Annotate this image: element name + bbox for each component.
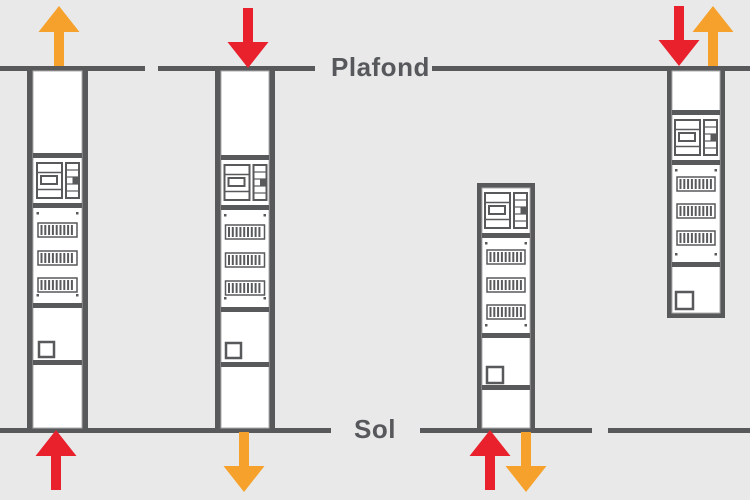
mounting-screw (76, 294, 79, 297)
section-divider (672, 160, 720, 165)
mounting-screw (715, 169, 718, 172)
mounting-screw (76, 212, 79, 215)
module-switch (260, 180, 266, 187)
panel-body (221, 71, 269, 428)
arrow-shape (693, 6, 734, 66)
floor-label: Sol (354, 414, 396, 445)
section-divider (672, 262, 720, 267)
mounting-screw (485, 242, 488, 245)
cabinet-graphic (27, 66, 88, 433)
mounting-screw (264, 297, 267, 300)
mounting-screw (224, 214, 227, 217)
arrow-shape (506, 432, 547, 492)
cabinet-rail (215, 66, 221, 433)
mounting-screw (37, 212, 40, 215)
module-switch (521, 208, 527, 215)
arrow-shape (36, 430, 77, 490)
distribution-board-3 (477, 183, 535, 438)
cabinet-rail (269, 66, 275, 433)
knockout-square (487, 367, 503, 383)
arrow-shape (228, 8, 269, 68)
mounting-screw (525, 324, 528, 327)
panel-2-floor-arrow-down-icon (222, 432, 266, 492)
section-divider (482, 333, 530, 338)
distribution-board-1 (27, 66, 88, 438)
mounting-screw (264, 214, 267, 217)
section-divider (482, 385, 530, 390)
mounting-screw (485, 324, 488, 327)
section-divider (221, 307, 269, 312)
meter-display (679, 133, 695, 141)
section-divider (672, 110, 720, 115)
module-switch (73, 178, 79, 185)
mounting-screw (675, 169, 678, 172)
panel-1-ceiling-arrow-up-icon (37, 6, 81, 66)
knockout-square (676, 292, 693, 309)
meter-display (229, 178, 245, 186)
section-divider (33, 303, 82, 308)
panel-body (672, 71, 720, 313)
floor-line-segment (608, 428, 750, 433)
panel-1-floor-arrow-up-icon (34, 430, 78, 490)
section-divider (221, 362, 269, 367)
meter-display (41, 176, 57, 184)
mounting-screw (224, 297, 227, 300)
mounting-screw (525, 242, 528, 245)
section-divider (33, 153, 82, 158)
mounting-screw (37, 294, 40, 297)
section-divider (33, 360, 82, 365)
panel-body (33, 71, 82, 428)
cabinet-graphic (667, 66, 725, 318)
panel-4-ceiling-arrow-up-icon (691, 6, 735, 66)
cabinet-rail (82, 66, 88, 433)
module-switch (711, 135, 717, 142)
meter-display (489, 206, 505, 214)
cabinet-graphic (477, 183, 535, 433)
diagram-canvas: Plafond Sol (0, 0, 750, 500)
knockout-square (39, 342, 54, 357)
panel-2-ceiling-arrow-down-icon (226, 8, 270, 68)
arrow-shape (224, 432, 265, 492)
section-divider (33, 203, 82, 208)
panel-3-floor-arrow-down-icon (504, 432, 548, 492)
ceiling-label: Plafond (331, 52, 430, 83)
section-divider (221, 205, 269, 210)
section-divider (482, 233, 530, 238)
distribution-board-4 (667, 66, 725, 323)
distribution-board-2 (215, 66, 275, 438)
mounting-screw (715, 253, 718, 256)
section-divider (221, 155, 269, 160)
knockout-square (226, 343, 241, 358)
mounting-screw (675, 253, 678, 256)
arrow-shape (39, 6, 80, 66)
cabinet-rail (27, 66, 33, 433)
cabinet-graphic (215, 66, 275, 433)
